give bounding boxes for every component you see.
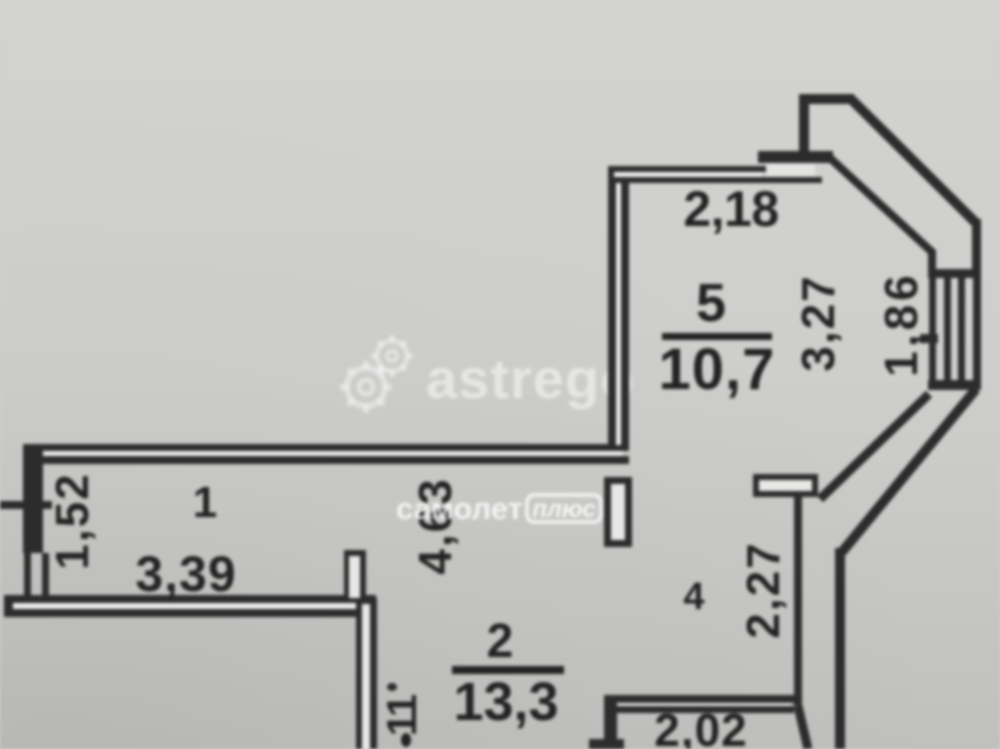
svg-text:плюс: плюс bbox=[532, 496, 595, 523]
svg-text:3,39: 3,39 bbox=[135, 546, 236, 602]
svg-text:5: 5 bbox=[696, 273, 726, 333]
svg-text:10,7: 10,7 bbox=[659, 337, 776, 402]
svg-text:2: 2 bbox=[487, 615, 514, 668]
svg-text:11: 11 bbox=[378, 694, 425, 736]
svg-text:2,27: 2,27 bbox=[737, 541, 789, 639]
svg-text:1,86: 1,86 bbox=[875, 271, 927, 377]
svg-text:4: 4 bbox=[683, 576, 704, 618]
svg-text:1,52: 1,52 bbox=[46, 472, 98, 570]
svg-text:3,27: 3,27 bbox=[792, 274, 844, 372]
svg-text:2,18: 2,18 bbox=[683, 181, 778, 237]
svg-text:astrego: astrego bbox=[426, 347, 635, 410]
svg-text:13,3: 13,3 bbox=[453, 672, 558, 732]
svg-text:самолет: самолет bbox=[396, 491, 523, 526]
svg-text:1: 1 bbox=[193, 478, 217, 527]
svg-text:2,02: 2,02 bbox=[654, 704, 748, 749]
